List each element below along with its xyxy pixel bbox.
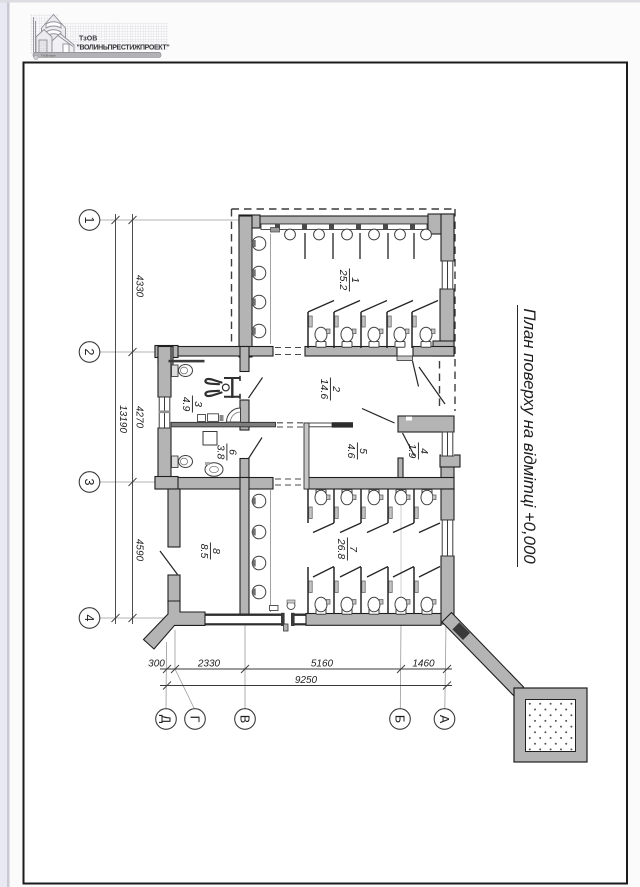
svg-text:5: 5 <box>357 448 369 454</box>
svg-text:4.9: 4.9 <box>180 397 192 412</box>
svg-text:1.9: 1.9 <box>406 444 418 459</box>
svg-text:14.6: 14.6 <box>318 379 330 400</box>
svg-text:4330: 4330 <box>134 275 145 298</box>
svg-text:4: 4 <box>82 615 96 622</box>
svg-text:Б: Б <box>393 715 407 723</box>
svg-text:4590: 4590 <box>134 539 145 562</box>
svg-text:"ВОЛИНЬПРЕСТИЖПРОЕКТ": "ВОЛИНЬПРЕСТИЖПРОЕКТ" <box>77 44 170 51</box>
svg-text:А: А <box>437 715 451 724</box>
svg-text:План поверху на відмітці +0,00: План поверху на відмітці +0,000 <box>520 308 539 564</box>
svg-text:6: 6 <box>227 449 239 455</box>
svg-text:В: В <box>238 715 252 723</box>
svg-text:4270: 4270 <box>134 406 145 429</box>
svg-text:2: 2 <box>330 385 342 392</box>
svg-text:300: 300 <box>148 658 165 669</box>
svg-text:ТзОВ: ТзОВ <box>79 36 97 43</box>
svg-text:1460: 1460 <box>412 658 435 669</box>
svg-text:4: 4 <box>418 448 430 454</box>
svg-text:2: 2 <box>82 349 96 356</box>
svg-text:ТзОВ мрія: ТзОВ мрія <box>41 54 56 58</box>
svg-text:8.5: 8.5 <box>198 544 210 559</box>
svg-text:Г: Г <box>188 716 202 723</box>
svg-text:13190: 13190 <box>117 405 128 433</box>
svg-text:3.8: 3.8 <box>215 445 227 460</box>
svg-text:25.2: 25.2 <box>337 269 349 291</box>
svg-text:2330: 2330 <box>197 658 221 669</box>
svg-text:1: 1 <box>82 217 96 224</box>
svg-text:8: 8 <box>210 548 222 554</box>
svg-text:1: 1 <box>349 277 361 283</box>
svg-text:3: 3 <box>192 401 204 407</box>
svg-text:Д: Д <box>159 715 173 724</box>
svg-text:4.6: 4.6 <box>345 444 357 459</box>
svg-text:3: 3 <box>82 479 96 486</box>
svg-text:26.8: 26.8 <box>335 538 347 560</box>
svg-text:5160: 5160 <box>311 658 334 669</box>
svg-text:9250: 9250 <box>295 675 318 686</box>
